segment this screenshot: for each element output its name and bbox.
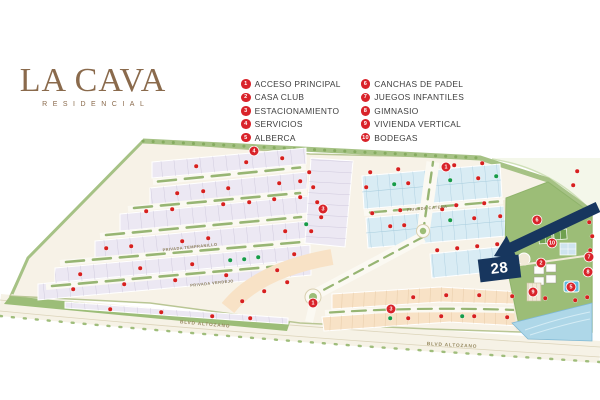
vertical-housing-building — [560, 243, 576, 255]
swimming-pool — [564, 281, 579, 292]
parking-lot — [527, 283, 541, 301]
site-map — [0, 0, 600, 400]
site-plan-page: LA CAVA RESIDENCIAL 1ACCESO PRINCIPAL2CA… — [0, 0, 600, 400]
mid-lot-column — [305, 158, 353, 247]
